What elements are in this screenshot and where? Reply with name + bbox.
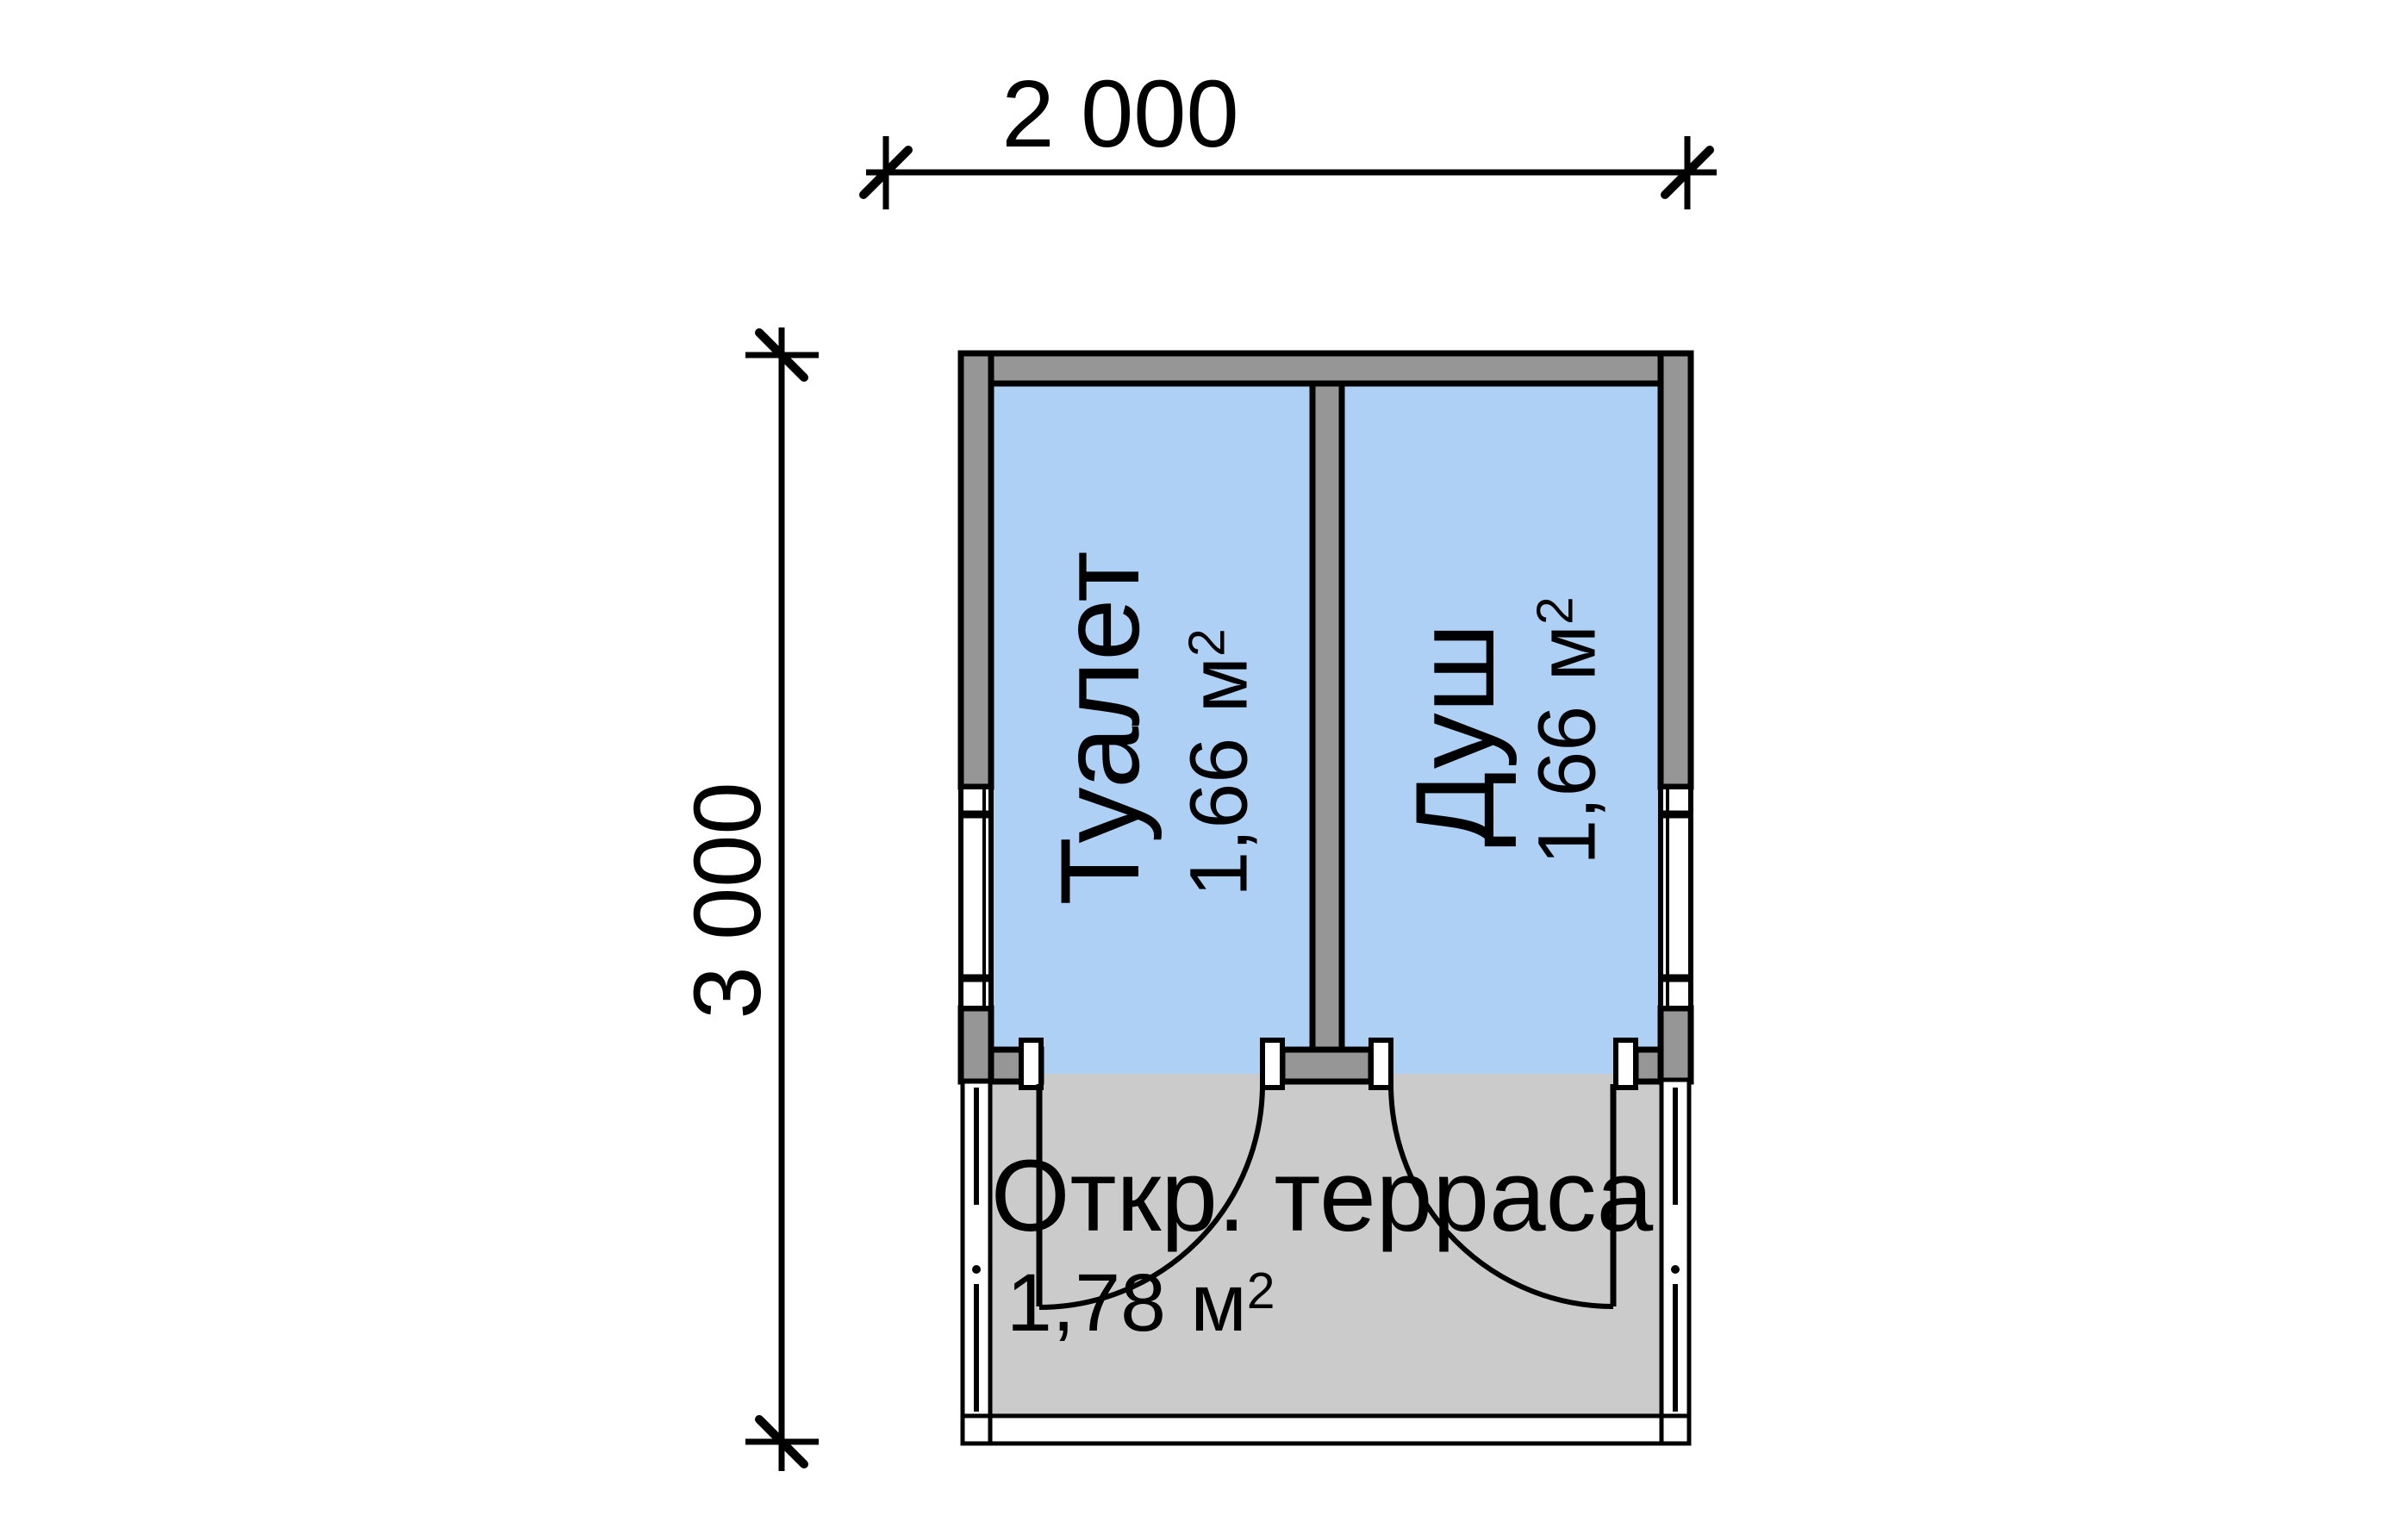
- dimension-line-width: [863, 136, 1717, 209]
- left-wall-lower: [961, 1008, 991, 1082]
- room-area-shower-value: 1,66: [1522, 706, 1613, 865]
- room-label-terrace: Откр. терраса: [991, 1145, 1654, 1247]
- room-area-terrace-value: 1,78: [1007, 1257, 1166, 1349]
- shower-doorway-floor: [1391, 1050, 1616, 1076]
- floor-plan-page: 2 000 3 000 Туалет 1,66м2 Душ 1,66м2 Отк…: [0, 0, 2394, 1540]
- toilet-doorway-floor: [1041, 1050, 1262, 1076]
- toilet-door-jamb-right: [1262, 1040, 1282, 1088]
- dimension-height-label: 3 000: [681, 782, 776, 1019]
- right-wall-upper: [1661, 353, 1691, 787]
- room-area-terrace-sup: 2: [1247, 1263, 1275, 1319]
- terrace-post-left: [963, 1416, 990, 1443]
- right-window: [1661, 787, 1691, 1008]
- shower-door-jamb-right: [1616, 1040, 1636, 1088]
- toilet-door-jamb-left: [1021, 1040, 1041, 1088]
- room-area-toilet-unit: м: [1174, 657, 1265, 713]
- railing-axis-right-dot: [1671, 1265, 1680, 1274]
- dimension-width-label: 2 000: [1001, 67, 1238, 162]
- partition-wall: [1312, 379, 1342, 1082]
- bottom-wall-middle-stub: [1282, 1050, 1371, 1082]
- terrace-railing-bottom: [963, 1416, 1689, 1443]
- room-area-shower-unit: м: [1522, 625, 1613, 681]
- left-wall-upper: [961, 353, 991, 787]
- right-wall-lower: [1661, 1008, 1691, 1082]
- shower-door-jamb-left: [1371, 1040, 1391, 1088]
- room-area-toilet: 1,66м2: [1179, 628, 1261, 896]
- top-wall: [961, 353, 1691, 383]
- room-label-shower: Душ: [1399, 623, 1511, 847]
- room-area-shower: 1,66м2: [1527, 596, 1609, 864]
- left-window: [961, 787, 991, 1008]
- room-area-terrace-unit: м: [1190, 1257, 1246, 1349]
- room-area-terrace: 1,78м2: [1007, 1263, 1275, 1344]
- room-label-toilet: Туалет: [1044, 551, 1156, 905]
- railing-axis-left-dot: [972, 1265, 981, 1274]
- room-area-shower-sup: 2: [1527, 596, 1583, 625]
- terrace-post-right: [1661, 1416, 1689, 1443]
- room-area-toilet-value: 1,66: [1174, 738, 1265, 897]
- room-area-toilet-sup: 2: [1179, 628, 1235, 657]
